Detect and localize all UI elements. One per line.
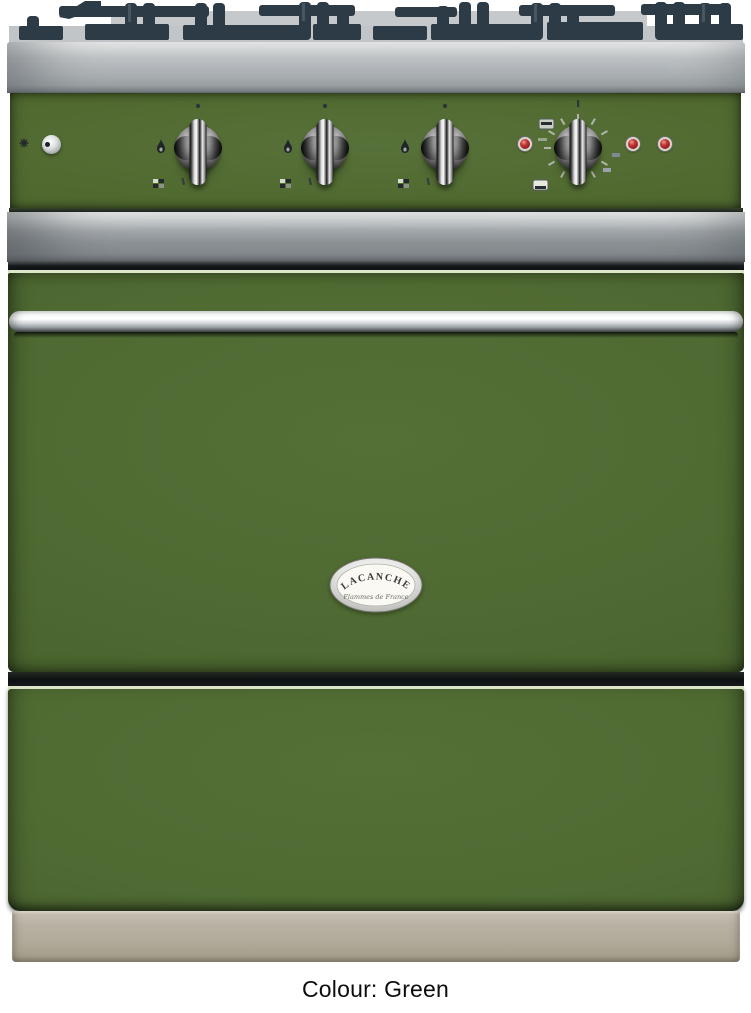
- indicator-light-1: [518, 137, 532, 151]
- oven-door: LACANCHE Flammes de France: [8, 270, 744, 672]
- knob-position-dots: [196, 100, 579, 108]
- burner-knob-1: [175, 125, 221, 171]
- ignition-spark-icon: [20, 139, 29, 148]
- hob-front-trim: [7, 42, 745, 93]
- control-panel: [10, 93, 741, 208]
- grill-icon: [539, 119, 554, 129]
- oven-door-handle: [9, 311, 743, 332]
- ignition-button: [42, 135, 61, 154]
- storage-drawer: [8, 686, 744, 911]
- range-cooker: LACANCHE Flammes de France: [7, 0, 745, 963]
- burner-knob-3: [422, 125, 468, 171]
- product-photo: LACANCHE Flammes de France Colour: Green: [0, 0, 751, 1013]
- brand-badge: LACANCHE Flammes de France: [329, 557, 423, 613]
- drawer-gap: [8, 672, 744, 686]
- oven-mode-icon: [533, 180, 548, 190]
- mid-stainless-trim: [7, 212, 745, 262]
- oven-thermostat-knob: [555, 125, 601, 171]
- door-top-gap: [8, 262, 744, 270]
- indicator-light-2: [626, 137, 640, 151]
- burner-knob-2: [302, 125, 348, 171]
- plinth: [12, 911, 740, 962]
- badge-subtitle: Flammes de France: [342, 593, 408, 601]
- indicator-light-3: [658, 137, 672, 151]
- pan-supports: [7, 0, 745, 44]
- caption: Colour: Green: [0, 976, 751, 1003]
- min-position-ticks: [181, 178, 430, 185]
